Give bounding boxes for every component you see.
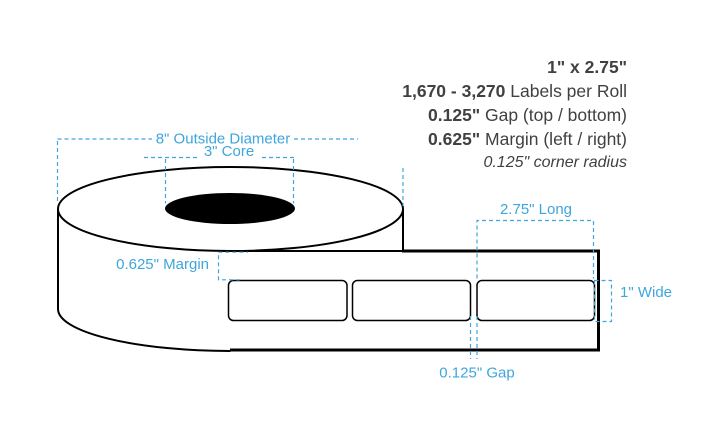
roll-bottom-arc — [58, 309, 231, 351]
label-rect-2 — [353, 281, 471, 321]
margin-dimension-label: 0.625" Margin — [116, 256, 209, 273]
label-roll-spec-diagram: 1" x 2.75" 1,670 - 3,270 Labels per Roll… — [0, 0, 707, 421]
label-rect-1 — [229, 281, 348, 321]
core-dimension-label: 3" Core — [204, 143, 254, 160]
label-rect-3 — [477, 281, 595, 321]
long-dimension-label: 2.75" Long — [500, 201, 572, 218]
gap-dimension-label: 0.125" Gap — [439, 365, 514, 382]
wide-dimension-label: 1" Wide — [620, 284, 672, 301]
margin-dimension-bracket — [219, 252, 249, 280]
roll-core-hole — [165, 193, 295, 224]
roll-drawing: 8" Outside Diameter 3" Core 0.625" Margi… — [0, 0, 707, 421]
